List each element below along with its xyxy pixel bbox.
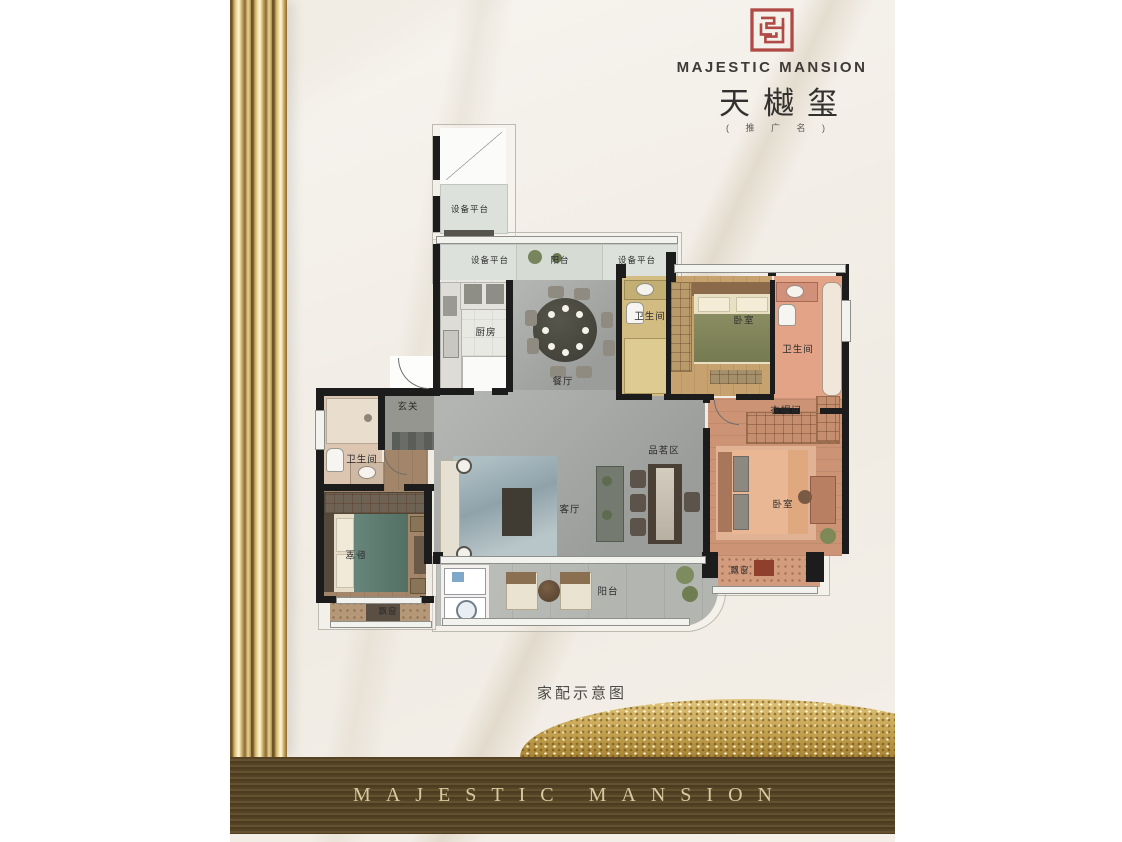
bathtub <box>822 282 842 396</box>
wall <box>420 596 434 603</box>
wall <box>433 136 440 180</box>
wall <box>322 484 384 491</box>
laundry-sink <box>444 568 486 595</box>
tea-chair <box>630 470 646 488</box>
wall <box>316 396 324 410</box>
brand-name-en: MAJESTIC MANSION <box>660 59 884 76</box>
room-label-bath-left: 卫生间 <box>346 455 378 465</box>
tea-chair <box>630 518 646 536</box>
room-label-cloakroom: 衣帽间 <box>770 406 802 416</box>
right-margin <box>895 0 1122 842</box>
nightstand <box>410 578 426 594</box>
kitchen-basin <box>464 284 482 304</box>
room-label-bay-master: 飘窗 <box>730 566 749 575</box>
wall <box>842 340 849 554</box>
tea-chair <box>630 494 646 512</box>
plate <box>542 327 549 334</box>
window <box>442 618 690 626</box>
bed-bench <box>710 370 762 384</box>
room-label-bedroom-left: 卧室 <box>344 548 365 558</box>
plant <box>528 250 542 264</box>
room-label-bay-left: 飘窗 <box>378 607 397 616</box>
wall <box>440 388 474 395</box>
tea-chair <box>684 492 700 512</box>
wall <box>506 280 513 392</box>
seal-icon <box>750 8 794 52</box>
tea-table-top <box>656 468 674 540</box>
wall <box>433 280 440 390</box>
window <box>440 556 706 564</box>
dining-chair <box>601 312 613 328</box>
shower <box>326 398 382 444</box>
wardrobe <box>670 282 692 372</box>
pillow <box>736 297 768 312</box>
plate <box>582 327 589 334</box>
wall <box>433 196 440 232</box>
sink <box>786 285 804 298</box>
wall <box>616 276 622 396</box>
sink <box>636 283 654 296</box>
wall <box>378 396 385 450</box>
wall <box>616 264 626 278</box>
wall <box>666 280 671 394</box>
plant <box>820 528 836 544</box>
side-table <box>538 580 560 602</box>
plant <box>682 586 698 602</box>
floor-lamp <box>456 458 472 474</box>
wardrobe <box>324 492 428 514</box>
footer-band: MAJESTIC MANSION <box>230 757 895 834</box>
wall <box>703 428 710 556</box>
plate <box>576 343 583 350</box>
dining-chair <box>603 340 615 356</box>
window <box>315 410 325 450</box>
wall <box>404 484 434 491</box>
foyer-mat <box>392 432 434 450</box>
wall <box>616 394 652 400</box>
plan-caption: 家配示意图 <box>482 682 682 703</box>
wall <box>433 244 440 280</box>
lounge-cushion <box>560 572 590 584</box>
pillow <box>733 456 749 492</box>
plant <box>676 566 694 584</box>
plate <box>562 305 569 312</box>
toilet <box>778 304 796 326</box>
shaft-flue <box>446 132 502 180</box>
toilet <box>326 448 344 472</box>
desk-chair <box>798 490 812 504</box>
wall <box>806 552 824 582</box>
plant <box>602 476 612 486</box>
tv-console <box>502 488 532 536</box>
plant <box>602 510 612 520</box>
sofa <box>440 460 460 558</box>
room-label-equip-right: 设备平台 <box>618 256 656 265</box>
plate <box>562 349 569 356</box>
closet <box>816 396 840 442</box>
window <box>712 586 818 594</box>
sink <box>358 466 376 479</box>
room-label-balcony-top: 阳台 <box>550 256 569 265</box>
poster: MAJESTIC MANSION MAJESTIC MANSION 天樾玺 ( … <box>0 0 1122 842</box>
left-margin <box>0 0 230 842</box>
pillow <box>336 554 354 588</box>
room-label-bath-top: 卫生间 <box>634 312 666 322</box>
pillow <box>733 494 749 530</box>
room-label-balcony-bottom: 阳台 <box>597 587 618 597</box>
plate <box>548 311 555 318</box>
wall <box>703 398 710 403</box>
kitchen-basin <box>486 284 504 304</box>
dining-chair <box>548 286 564 298</box>
window <box>330 621 432 628</box>
wall <box>316 596 336 603</box>
room-label-equip-left: 设备平台 <box>471 256 509 265</box>
lounge-cushion <box>506 572 536 584</box>
brand-name-cn: 天樾玺 <box>660 78 897 123</box>
gold-glitter-mound <box>520 699 895 757</box>
wall <box>316 448 324 602</box>
room-label-living: 客厅 <box>559 505 580 515</box>
room-label-kitchen: 厨房 <box>475 328 496 338</box>
shower <box>624 338 670 394</box>
gold-pillar <box>230 0 287 757</box>
kitchen-island <box>462 356 508 392</box>
room-label-equip-top: 设备平台 <box>451 205 489 214</box>
kitchen-sink <box>443 296 457 316</box>
room-label-bedroom-top: 卧室 <box>733 316 754 326</box>
shower-drain <box>364 414 372 422</box>
brand-seal-logo <box>750 8 794 52</box>
dining-chair <box>525 310 537 326</box>
dining-chair <box>576 366 592 378</box>
room-label-dining: 餐厅 <box>552 377 573 387</box>
desk <box>810 476 836 524</box>
window <box>841 300 851 342</box>
bay-cushion <box>754 560 774 576</box>
dining-chair <box>527 338 539 354</box>
room-label-foyer: 玄关 <box>397 402 418 412</box>
wall <box>316 388 440 396</box>
wall <box>770 280 775 394</box>
footer-brand-text: MAJESTIC MANSION <box>338 784 787 807</box>
room-label-bedroom-master: 卧室 <box>772 500 793 510</box>
room-label-bath-ensuite: 卫生间 <box>782 345 814 355</box>
room-label-tea-area: 品茗区 <box>648 446 680 456</box>
wall <box>736 394 774 400</box>
dining-chair <box>574 288 590 300</box>
window <box>674 264 846 273</box>
pillow <box>698 297 730 312</box>
plate <box>548 343 555 350</box>
wall <box>424 491 432 564</box>
laundry-basin <box>452 572 464 582</box>
window <box>336 597 422 604</box>
plate <box>576 311 583 318</box>
window <box>436 236 678 244</box>
wall <box>820 408 842 414</box>
bed-headboard <box>718 452 732 532</box>
bed-blanket <box>694 314 770 362</box>
brand-subtitle: ( 推 广 名 ) <box>660 121 891 134</box>
kitchen-stove <box>443 330 459 358</box>
